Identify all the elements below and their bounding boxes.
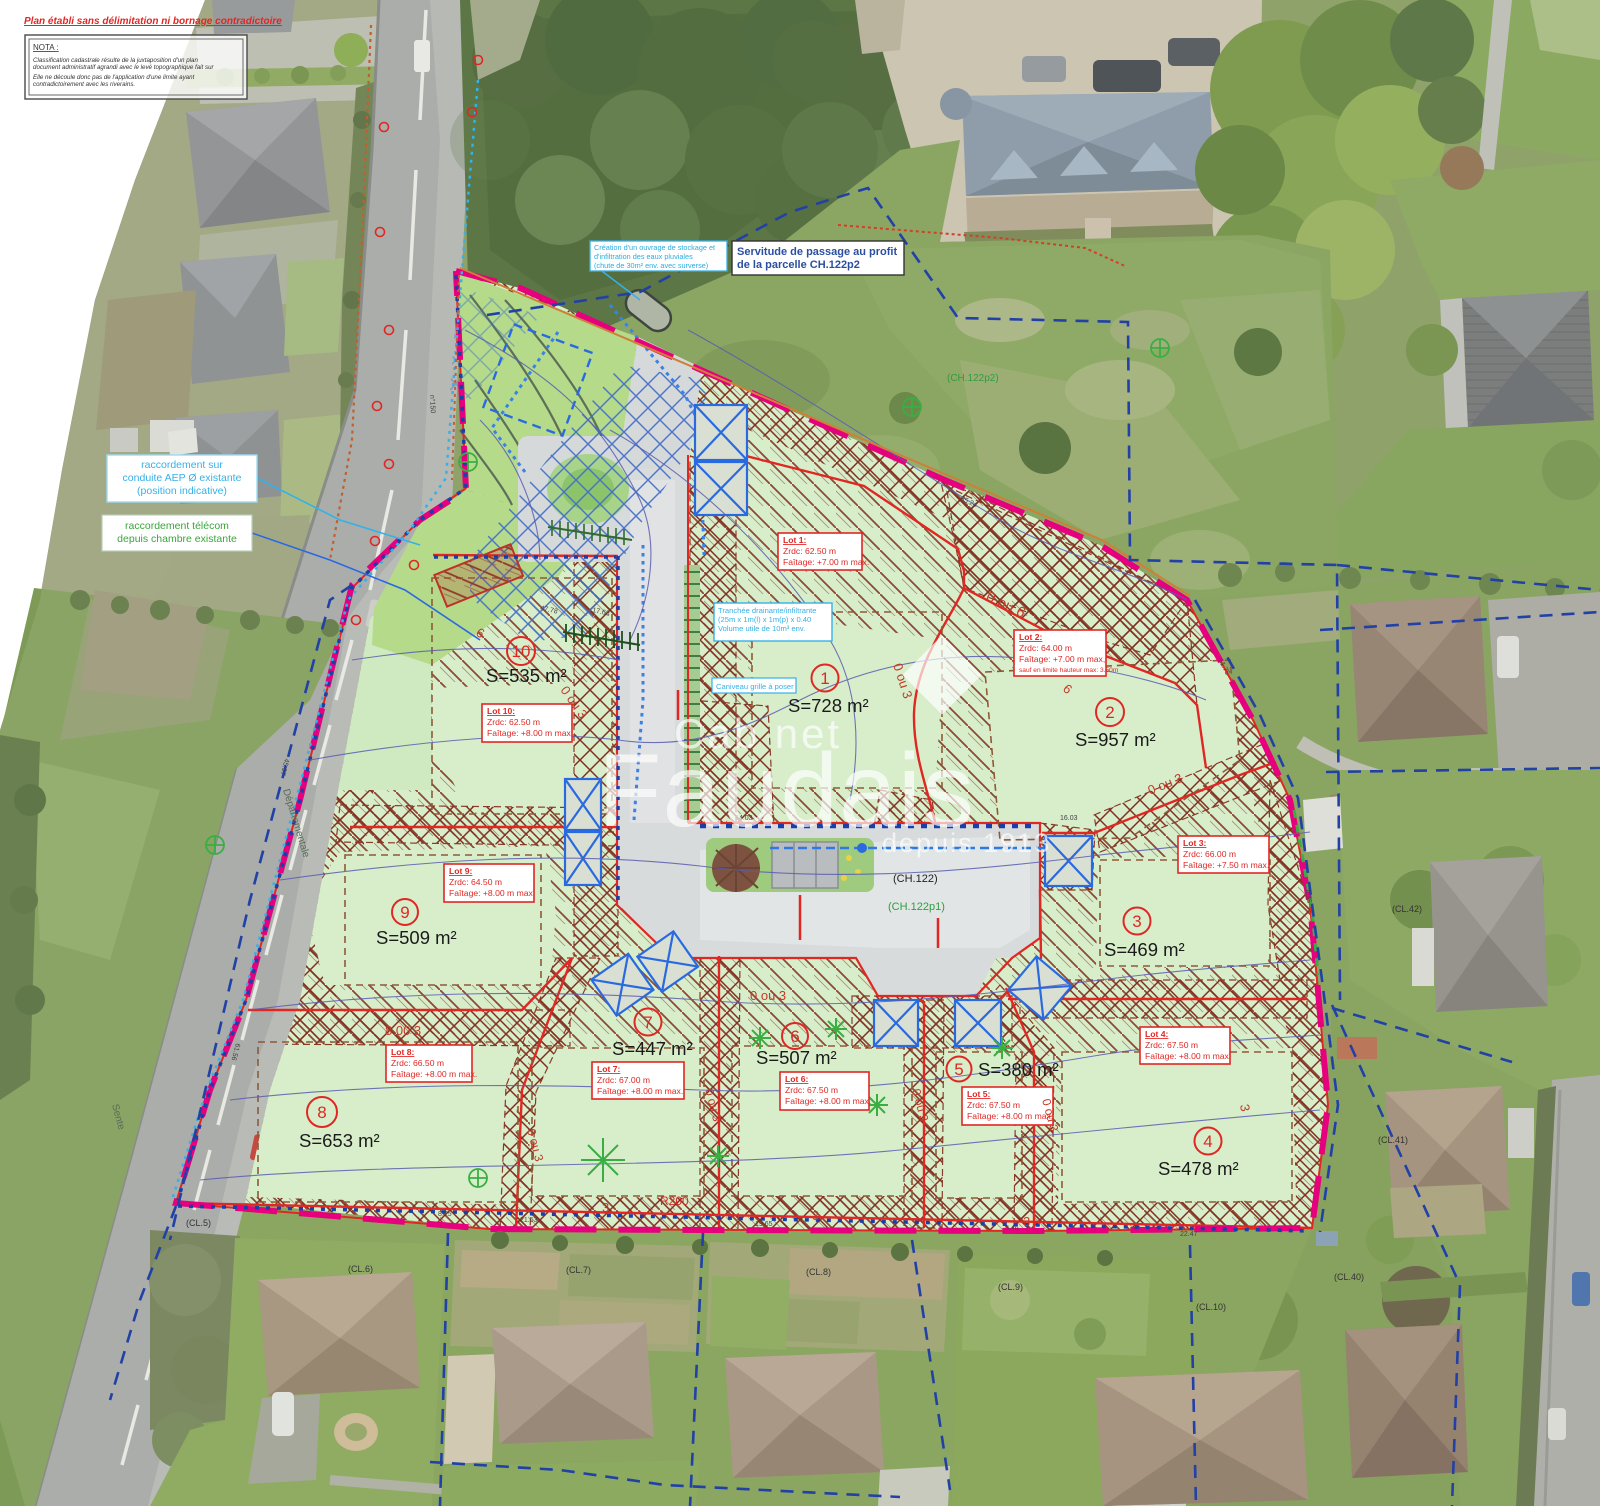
svg-text:Zrdc: 67.50 m: Zrdc: 67.50 m xyxy=(967,1100,1020,1110)
svg-text:S=535 m²: S=535 m² xyxy=(486,665,567,686)
svg-text:(CL.6): (CL.6) xyxy=(348,1264,373,1274)
svg-text:2: 2 xyxy=(1105,703,1114,722)
svg-text:Zrdc: 62.50 m: Zrdc: 62.50 m xyxy=(487,717,540,727)
svg-text:8.00 3: 8.00 3 xyxy=(385,1023,421,1038)
svg-text:0 ou 3: 0 ou 3 xyxy=(750,988,786,1003)
svg-text:3: 3 xyxy=(1132,912,1141,931)
svg-text:Lot 7:: Lot 7: xyxy=(597,1064,621,1074)
svg-text:Faîtage: +7.00 m max.: Faîtage: +7.00 m max. xyxy=(783,557,869,567)
svg-text:S=509 m²: S=509 m² xyxy=(376,927,457,948)
svg-text:Faîtage: +8.00 m max.: Faîtage: +8.00 m max. xyxy=(785,1096,871,1106)
svg-text:16.03: 16.03 xyxy=(1060,815,1078,822)
svg-text:Elle ne découle donc pas de l': Elle ne découle donc pas de l'applicatio… xyxy=(33,74,195,81)
svg-text:5: 5 xyxy=(954,1060,963,1079)
svg-text:6: 6 xyxy=(790,1027,799,1046)
svg-text:(CL.7): (CL.7) xyxy=(566,1265,591,1275)
svg-text:10: 10 xyxy=(512,642,531,661)
svg-text:S=447 m²: S=447 m² xyxy=(612,1038,693,1059)
svg-text:Faîtage: +8.00 m max.: Faîtage: +8.00 m max. xyxy=(391,1069,477,1079)
svg-text:n°150: n°150 xyxy=(428,395,437,414)
svg-text:(CH.122p2): (CH.122p2) xyxy=(947,373,999,384)
svg-text:3: 3 xyxy=(1023,1214,1030,1229)
svg-text:raccordement sur: raccordement sur xyxy=(141,459,223,471)
svg-text:7: 7 xyxy=(643,1013,652,1032)
svg-text:(position indicative): (position indicative) xyxy=(137,485,227,497)
svg-text:R200: R200 xyxy=(660,1194,689,1208)
svg-text:Plan établi sans délimitation: Plan établi sans délimitation ni bornage… xyxy=(24,16,282,27)
svg-text:Zrdc: 66.50 m: Zrdc: 66.50 m xyxy=(391,1058,444,1068)
svg-text:22.47: 22.47 xyxy=(1180,1231,1198,1238)
svg-text:d'infiltration des eaux pluvia: d'infiltration des eaux pluviales xyxy=(594,252,693,261)
svg-text:4: 4 xyxy=(1203,1132,1212,1151)
svg-text:Zrdc: 62.50 m: Zrdc: 62.50 m xyxy=(783,546,836,556)
svg-text:Lot 8:: Lot 8: xyxy=(391,1047,415,1057)
svg-text:Lot 2:: Lot 2: xyxy=(1019,632,1043,642)
svg-text:Tranchée drainante/infiltrante: Tranchée drainante/infiltrante xyxy=(718,606,817,615)
svg-text:Zrdc: 64.00 m: Zrdc: 64.00 m xyxy=(1019,643,1072,653)
svg-text:(CL.5): (CL.5) xyxy=(186,1218,211,1228)
svg-text:(CL.10): (CL.10) xyxy=(1196,1302,1226,1312)
svg-text:contradictoirement avec les ri: contradictoirement avec les riverains. xyxy=(33,81,135,88)
svg-text:Zrdc: 67.50 m: Zrdc: 67.50 m xyxy=(1145,1040,1198,1050)
svg-text:Lot 3:: Lot 3: xyxy=(1183,838,1207,848)
svg-text:Faîtage: +7.50 m max.: Faîtage: +7.50 m max. xyxy=(1183,860,1269,870)
svg-text:S=380 m²: S=380 m² xyxy=(978,1059,1059,1080)
svg-text:Caniveau grille à poser: Caniveau grille à poser xyxy=(716,682,794,691)
svg-text:NOTA :: NOTA : xyxy=(33,43,59,52)
svg-text:(CH.122): (CH.122) xyxy=(893,873,938,885)
svg-text:(CL.8): (CL.8) xyxy=(806,1267,831,1277)
svg-text:depuis chambre existante: depuis chambre existante xyxy=(117,533,237,545)
svg-text:(CL.41): (CL.41) xyxy=(1378,1135,1408,1145)
svg-text:3: 3 xyxy=(602,1200,609,1215)
svg-text:Lot 6:: Lot 6: xyxy=(785,1074,809,1084)
svg-text:Zrdc: 66.00 m: Zrdc: 66.00 m xyxy=(1183,849,1236,859)
svg-text:S=957 m²: S=957 m² xyxy=(1075,729,1156,750)
svg-text:Lot 5:: Lot 5: xyxy=(967,1089,991,1099)
svg-text:3: 3 xyxy=(812,1208,819,1223)
svg-text:(25m x 1m(l) x 1m(p) x 0.40: (25m x 1m(l) x 1m(p) x 0.40 xyxy=(718,615,811,624)
svg-text:de la parcelle CH.122p2: de la parcelle CH.122p2 xyxy=(737,259,860,271)
svg-text:Servitude de passage au profit: Servitude de passage au profit xyxy=(737,246,897,258)
svg-text:(CL.9): (CL.9) xyxy=(998,1282,1023,1292)
svg-text:Lot 4:: Lot 4: xyxy=(1145,1029,1169,1039)
svg-text:S=653 m²: S=653 m² xyxy=(299,1130,380,1151)
svg-text:Faîtage: +8.00 m max.: Faîtage: +8.00 m max. xyxy=(597,1086,683,1096)
svg-text:depuis 1913: depuis 1913 xyxy=(882,828,1051,858)
svg-text:S=507 m²: S=507 m² xyxy=(756,1047,837,1068)
svg-text:19.65: 19.65 xyxy=(755,1221,773,1228)
svg-text:8.25: 8.25 xyxy=(438,1211,452,1218)
svg-text:S=469 m²: S=469 m² xyxy=(1104,939,1185,960)
svg-text:(CL.42): (CL.42) xyxy=(1392,904,1422,914)
svg-text:raccordement télécom: raccordement télécom xyxy=(125,520,229,532)
svg-text:9: 9 xyxy=(400,903,409,922)
svg-text:Lot 1:: Lot 1: xyxy=(783,535,807,545)
svg-text:Zrdc: 67.00 m: Zrdc: 67.00 m xyxy=(597,1075,650,1085)
svg-text:sauf en limite hauteur max: 3.: sauf en limite hauteur max: 3.50m xyxy=(1019,667,1119,674)
svg-text:Zrdc: 67.50 m: Zrdc: 67.50 m xyxy=(785,1085,838,1095)
svg-text:8.46: 8.46 xyxy=(1005,1225,1019,1232)
svg-text:(chute de 30m² env. avec surve: (chute de 30m² env. avec surverse) xyxy=(594,261,708,270)
svg-text:Volume utile de 10m³ env.: Volume utile de 10m³ env. xyxy=(718,624,805,633)
svg-text:conduite AEP Ø existante: conduite AEP Ø existante xyxy=(123,472,242,484)
svg-text:(CL.40): (CL.40) xyxy=(1334,1272,1364,1282)
svg-text:Création d'un ouvrage de stock: Création d'un ouvrage de stockage et xyxy=(594,243,715,252)
svg-text:Faîtage: +8.00 m max.: Faîtage: +8.00 m max. xyxy=(967,1111,1053,1121)
svg-text:21.53: 21.53 xyxy=(520,1217,538,1224)
svg-text:Faîtage: +8.00 m max.: Faîtage: +8.00 m max. xyxy=(487,728,573,738)
svg-text:Faîtage: +8.00 m max.: Faîtage: +8.00 m max. xyxy=(1145,1051,1231,1061)
svg-text:Faîtage: +7.00 m max,: Faîtage: +7.00 m max, xyxy=(1019,654,1105,664)
svg-text:Zrdc: 64.50 m: Zrdc: 64.50 m xyxy=(449,877,502,887)
svg-text:Lot 10:: Lot 10: xyxy=(487,706,515,716)
svg-text:Lot 9:: Lot 9: xyxy=(449,866,473,876)
svg-text:8: 8 xyxy=(317,1103,326,1122)
svg-text:document administratif agrandi: document administratif agrandi avec le l… xyxy=(33,64,215,71)
svg-text:1: 1 xyxy=(820,669,829,688)
svg-text:Faîtage: +8.00 m max.: Faîtage: +8.00 m max. xyxy=(449,888,535,898)
svg-text:(CH.122p1): (CH.122p1) xyxy=(888,901,945,913)
svg-text:Classification cadastrale résu: Classification cadastrale résulte de la … xyxy=(33,57,198,64)
svg-text:S=478 m²: S=478 m² xyxy=(1158,1158,1239,1179)
